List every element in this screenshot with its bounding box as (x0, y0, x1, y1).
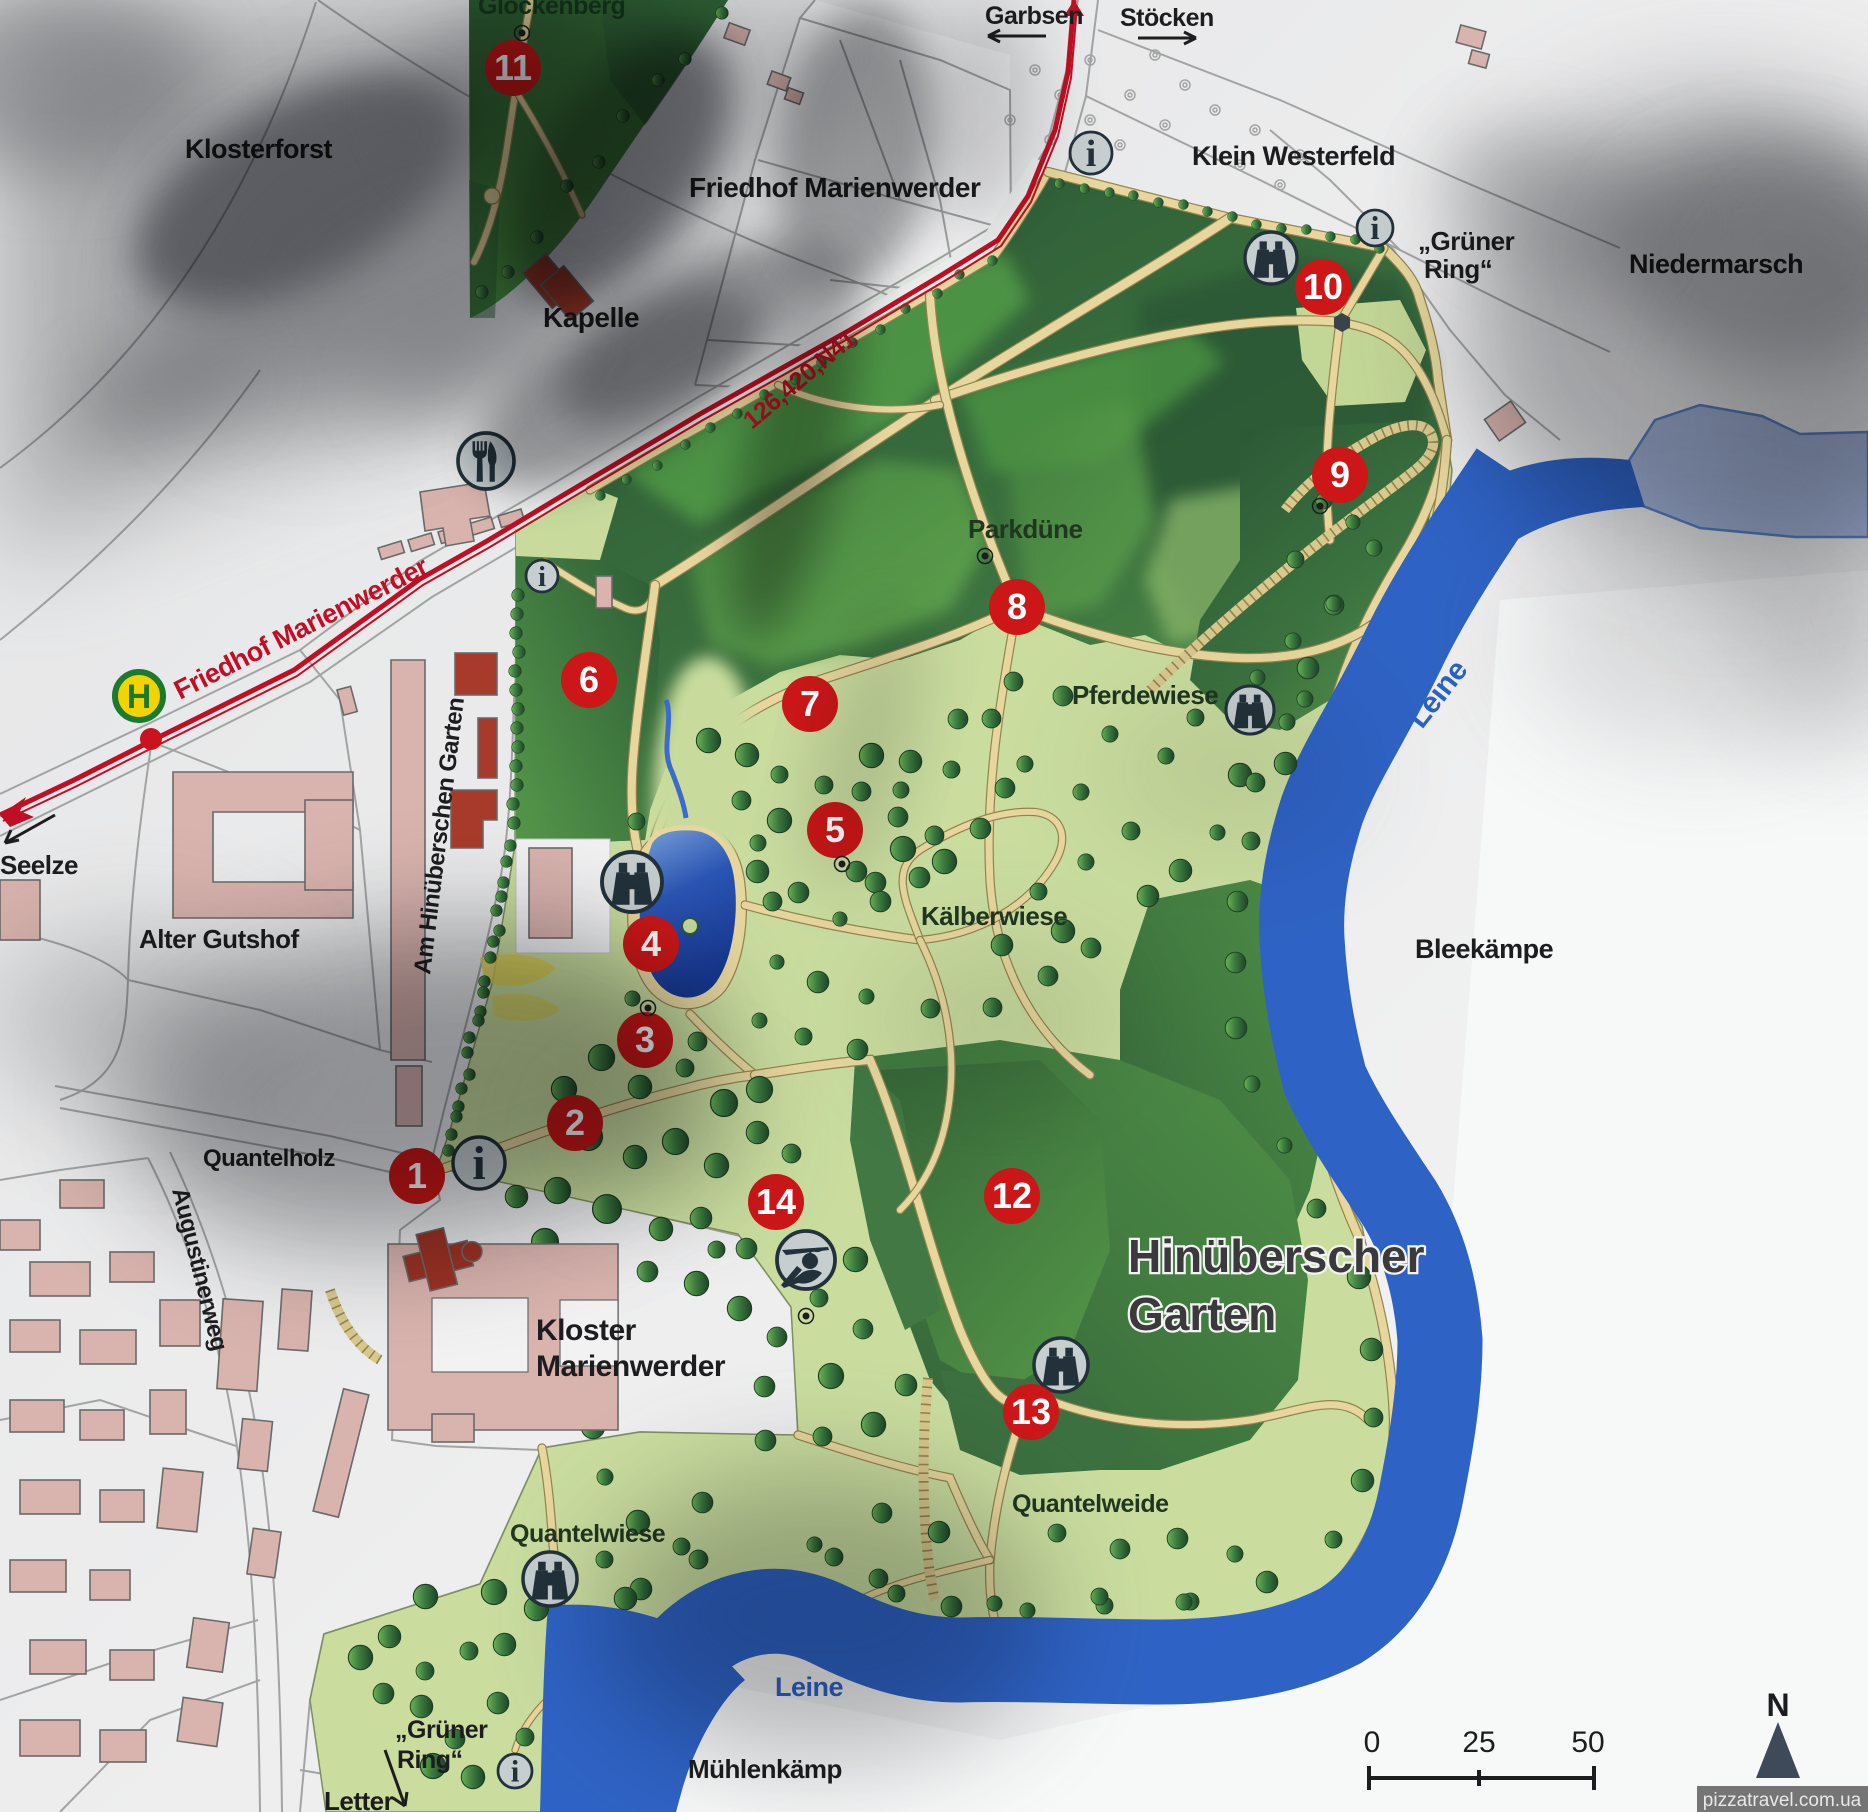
svg-text:i: i (511, 1754, 520, 1789)
svg-text:4: 4 (641, 923, 661, 964)
svg-text:Parkdüne: Parkdüne (968, 514, 1083, 544)
svg-text:i: i (538, 561, 546, 593)
svg-text:Klein Westerfeld: Klein Westerfeld (1192, 141, 1395, 171)
svg-text:10: 10 (1303, 266, 1343, 307)
svg-text:6: 6 (579, 659, 599, 700)
svg-text:Stöcken: Stöcken (1120, 4, 1214, 32)
svg-text:Garten: Garten (1128, 1288, 1276, 1340)
svg-text:Hinüberscher: Hinüberscher (1128, 1230, 1425, 1282)
svg-text:50: 50 (1571, 1726, 1604, 1759)
svg-text:i: i (1086, 133, 1097, 175)
svg-text:9: 9 (1330, 454, 1350, 495)
svg-text:14: 14 (756, 1181, 796, 1222)
svg-text:Kloster: Kloster (536, 1314, 637, 1347)
svg-text:Kälberwiese: Kälberwiese (921, 901, 1067, 931)
svg-text:N: N (1766, 1687, 1789, 1723)
svg-text:Bleekämpe: Bleekämpe (1415, 934, 1554, 964)
svg-text:H: H (127, 678, 152, 716)
svg-text:13: 13 (1011, 1391, 1051, 1432)
svg-text:„Grüner: „Grüner (395, 1716, 488, 1744)
svg-text:Ring“: Ring“ (397, 1746, 463, 1774)
svg-text:Quantelweide: Quantelweide (1012, 1490, 1169, 1518)
svg-text:12: 12 (992, 1175, 1032, 1216)
svg-text:Seelze: Seelze (0, 850, 78, 880)
svg-text:7: 7 (800, 683, 820, 724)
svg-text:pizzatravel.com.ua: pizzatravel.com.ua (1703, 1790, 1862, 1811)
svg-text:25: 25 (1462, 1726, 1495, 1759)
svg-text:Marienwerder: Marienwerder (536, 1350, 726, 1383)
svg-text:Letter: Letter (324, 1786, 394, 1812)
svg-text:8: 8 (1007, 586, 1027, 627)
svg-text:i: i (1370, 211, 1379, 247)
svg-text:0: 0 (1364, 1726, 1381, 1759)
